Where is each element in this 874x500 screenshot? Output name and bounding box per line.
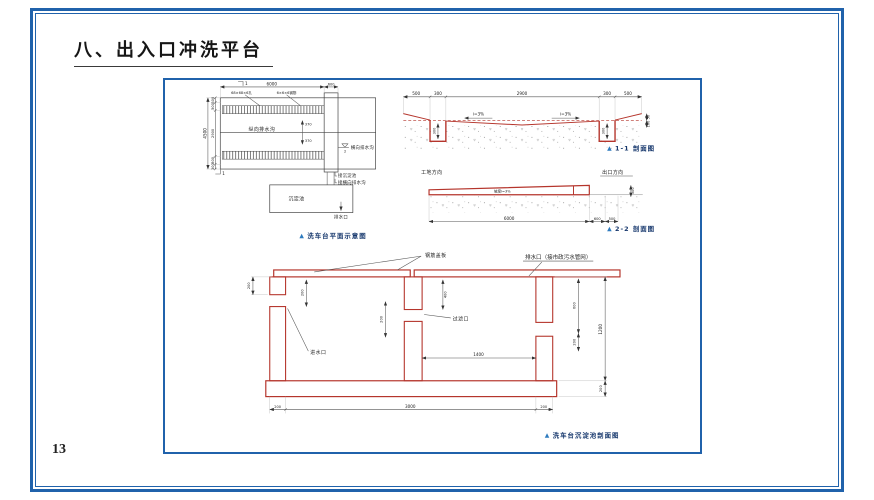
section-mark-2: 2 [344,150,346,154]
drawing-svg: 68×68×6孔 6×6×6钢筋 6000 600 1 1 [165,80,700,452]
right-wall-top [536,277,553,323]
exit-direction-label: 出口方向 [602,169,623,176]
plan-left-seg-5: 300 [211,163,215,171]
dim-baffle: 400 [443,291,447,299]
tank-section: 钢筋盖板 排水口（接市政污水管网） 过滤口 进水口 200 200 200 40 [247,252,620,440]
grating-band-bottom [222,151,324,159]
caption-triangle-icon: ▲ [299,232,304,239]
trench-depth-right: 300 [602,127,606,135]
caption-triangle-icon: ▲ [607,225,612,232]
grating-band-top [222,106,324,114]
tank-label: 沉淀池 [288,196,304,203]
section-mark-1-bottom: 1 [222,171,225,176]
offset-up-label: 370 [305,123,313,127]
inlet-label: 进水口 [310,349,326,356]
drawing-frame: 68×68×6孔 6×6×6钢筋 6000 600 1 1 [163,78,702,454]
s22-dim-length: 6000 [504,216,515,221]
longitudinal-drain-label: 纵向排水沟 [248,126,275,133]
plan-left-total: 4500 [202,128,207,139]
s22-dim-strip: 600 [594,217,602,221]
s11-dim-3: 2900 [517,91,528,96]
plan-left-seg-4: 500 [211,156,215,164]
offset-down-label: 370 [305,139,313,143]
s11-dim-1: 500 [412,91,420,96]
trench-depth-left: 300 [433,127,437,135]
filter-label: 过滤口 [453,315,469,322]
left-wall-top [270,277,286,295]
s11-edge-top: 50 [647,114,651,119]
dim-filter-drop: 200 [380,315,384,323]
s22-dim-edge: 500 [609,217,617,221]
dim-inlet-drop: 200 [300,289,304,297]
s22-ground-speckle [429,196,641,213]
dim-stub: 200 [247,282,251,290]
tank-caption: 洗车台沉淀池剖面图 [553,431,620,440]
s11-edge-bottom: 100 [647,120,651,128]
s22-slope-label: 坡度i=3% [494,188,511,193]
right-wall-bottom [536,336,553,381]
cover-slab-right [414,270,620,277]
plan-left-seg-3: 2900 [211,128,215,138]
s11-dim-4: 300 [603,91,611,96]
dim-bottom-right: 200 [540,405,548,409]
dim-bottom-span: 3000 [405,404,416,409]
slope-left-label: i=3% [473,112,484,117]
caption-triangle-icon: ▲ [607,145,612,152]
outlet-label: 排水口（接市政污水管网） [525,253,591,261]
plan-dim-strip: 600 [328,82,336,86]
s11-caption: 1-1 剖面图 [615,144,655,153]
s11-dim-5: 500 [624,91,632,96]
plan-outlet-label: 排水口 [334,214,348,221]
dim-chamber: 1400 [473,352,484,357]
dim-right-total: 1200 [598,324,603,335]
floor-slab [266,381,557,397]
dim-right-top: 600 [572,301,576,309]
sedimentation-tank-box [270,185,353,213]
section-1-1: 500 300 2900 300 500 300 300 i=3% [403,91,655,153]
cover-slab-left [274,270,411,277]
plan-dim-top: 6000 [266,81,277,86]
left-wall-main [270,307,286,381]
s22-caption: 2-2 剖面图 [615,224,655,233]
slope-right-label: i=3% [560,112,571,117]
baffle-wall-top [404,277,422,310]
dim-floor-thk: 200 [599,385,603,393]
to-tank-label: 接沉淀池 [338,172,357,179]
document-page: 八、出入口冲洗平台 13 [0,0,874,500]
section-2-2: 工地方向 出口方向 坡度i=3% 6000 600 500 300 ▲ [421,169,655,233]
section-mark-1-top: 1 [245,81,248,86]
plan-caption: 洗车台平面示意图 [307,231,366,240]
caption-triangle-icon: ▲ [545,432,550,439]
cover-label: 钢筋盖板 [425,252,446,259]
grating-label-right: 6×6×6钢筋 [277,90,297,95]
s22-dim-height: 300 [631,187,635,195]
s11-dim-2: 300 [434,91,442,96]
transverse-drain-label: 横向排水沟 [351,144,374,151]
plan-left-seg-1: 300 [211,96,215,104]
plan-view: 68×68×6孔 6×6×6钢筋 6000 600 1 1 [202,81,375,240]
grating-label-left: 68×68×6孔 [231,90,252,95]
baffle-wall-bottom [404,321,422,380]
plan-left-seg-2: 500 [211,102,215,110]
dim-right-mid: 200 [572,338,576,346]
dim-bottom-left: 200 [274,405,282,409]
site-direction-label: 工地方向 [421,169,442,176]
